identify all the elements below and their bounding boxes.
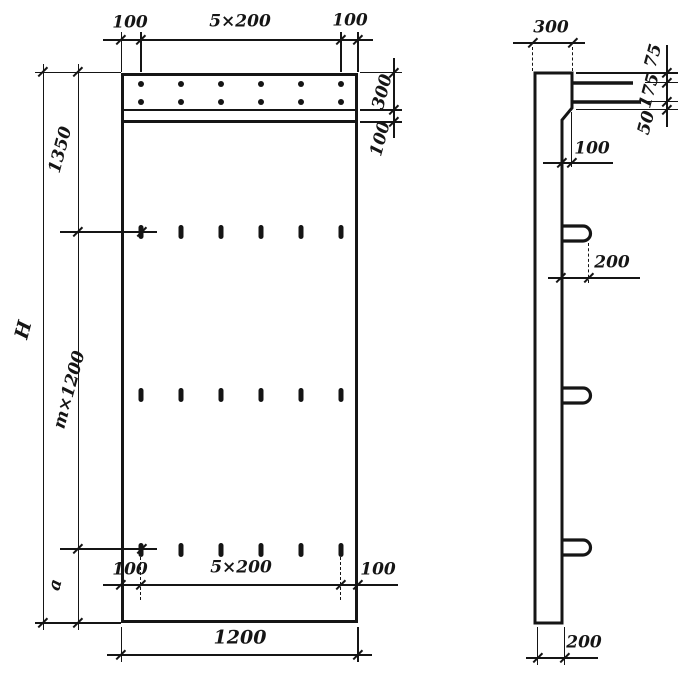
loop-slot — [139, 388, 144, 402]
bar-dot — [218, 99, 224, 105]
dim-label-side-bottom: 200 — [566, 635, 602, 652]
extension-line — [576, 109, 678, 110]
dim-label-sub-band: 100 — [368, 120, 394, 159]
side-loop — [562, 540, 591, 555]
dim-label-width: 1200 — [214, 629, 267, 648]
dim-label-ledge: 100 — [574, 141, 610, 158]
dim-label-side-top: 300 — [533, 20, 569, 37]
loop-slot — [179, 388, 184, 402]
side-loop — [562, 388, 591, 403]
dimension-line — [107, 654, 372, 656]
loop-slot — [179, 543, 184, 557]
dim-label-left-lower: a — [46, 577, 65, 592]
dimension-line — [666, 45, 668, 127]
loop-slot — [259, 388, 264, 402]
loop-slot — [259, 225, 264, 239]
bar-dot — [138, 99, 144, 105]
dimension-line — [103, 39, 373, 41]
loop-slot — [179, 225, 184, 239]
dim-label-height: H — [13, 319, 36, 341]
loop-slot — [299, 543, 304, 557]
drawing-sheet: 100 5×200 100 300 100 1350 H m×1200 a — [0, 0, 700, 700]
bar-dot — [178, 81, 184, 87]
extension-line — [340, 557, 341, 600]
dim-label-top-right: 100 — [332, 13, 368, 30]
band-line-upper — [124, 109, 355, 111]
dim-label-bottom-inner-span: 5×200 — [210, 560, 272, 577]
extension-line — [572, 47, 573, 71]
bar-dot — [298, 81, 304, 87]
dim-label-bottom-inner-left: 100 — [112, 562, 148, 579]
dim-label-bottom-inner-right: 100 — [360, 562, 396, 579]
loop-slot — [219, 543, 224, 557]
bar-dot — [138, 81, 144, 87]
loop-slot — [299, 225, 304, 239]
bar-dot — [218, 81, 224, 87]
loop-slot — [339, 388, 344, 402]
dimension-line — [43, 64, 45, 630]
bar-dot — [298, 99, 304, 105]
dim-label-loop: 200 — [594, 255, 630, 272]
loop-slot — [219, 225, 224, 239]
panel-outline — [121, 73, 358, 623]
band-line-lower — [124, 120, 355, 123]
dim-label-top-left: 100 — [112, 15, 148, 32]
dim-label-band: 300 — [370, 73, 396, 112]
bar-dot — [258, 81, 264, 87]
dim-label-left-upper: 1350 — [47, 125, 76, 175]
dim-label-top-span: 5×200 — [209, 14, 271, 31]
loop-slot — [339, 543, 344, 557]
loop-slot — [299, 388, 304, 402]
loop-slot — [259, 543, 264, 557]
extension-line — [532, 47, 533, 71]
bar-dot — [258, 99, 264, 105]
extension-line — [571, 112, 572, 167]
bar-dot — [178, 99, 184, 105]
loop-slot — [339, 225, 344, 239]
bar-dot — [338, 81, 344, 87]
dimension-line — [543, 162, 613, 164]
dim-label-left-middle: m×1200 — [51, 349, 88, 430]
extension-line — [576, 72, 678, 73]
loop-slot — [219, 388, 224, 402]
side-loop — [562, 226, 591, 241]
bar-dot — [338, 99, 344, 105]
